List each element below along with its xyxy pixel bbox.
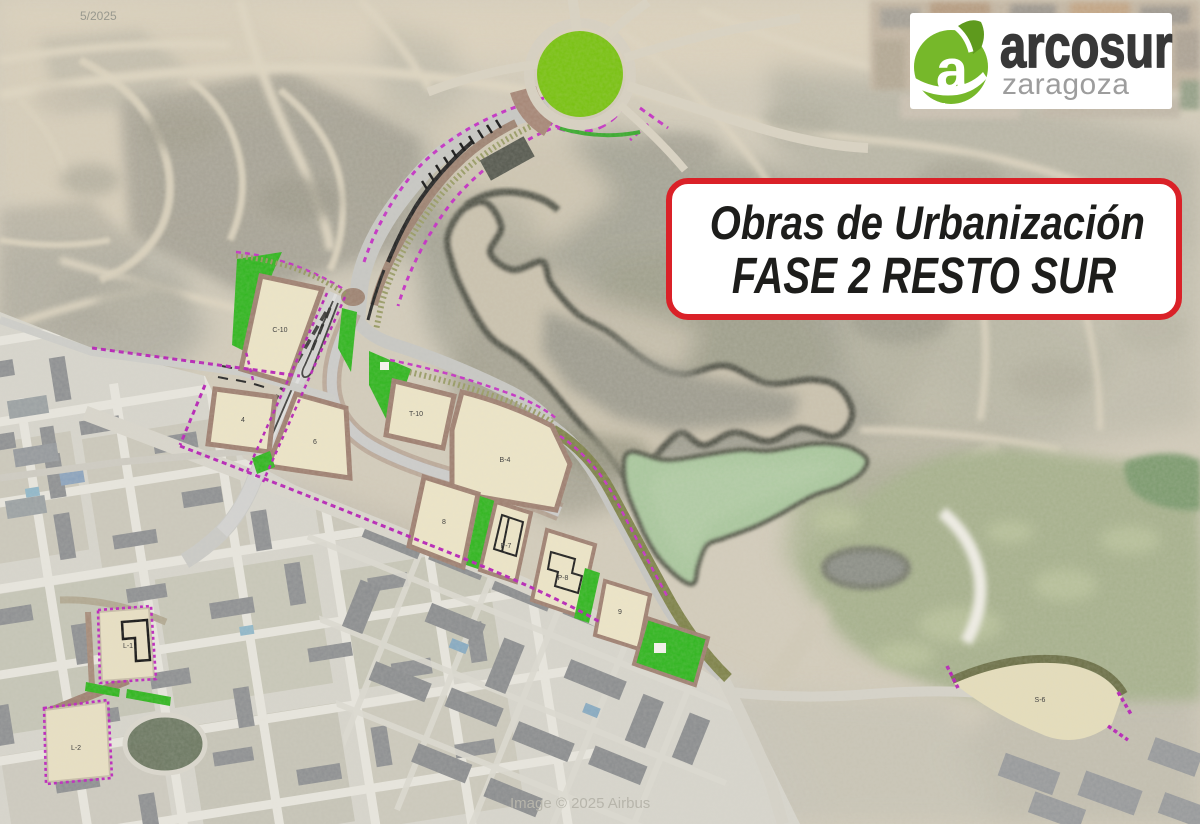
svg-text:Image © 2025 Airbus: Image © 2025 Airbus bbox=[510, 795, 650, 812]
svg-text:5/2025: 5/2025 bbox=[80, 9, 117, 23]
svg-text:a: a bbox=[936, 38, 969, 103]
